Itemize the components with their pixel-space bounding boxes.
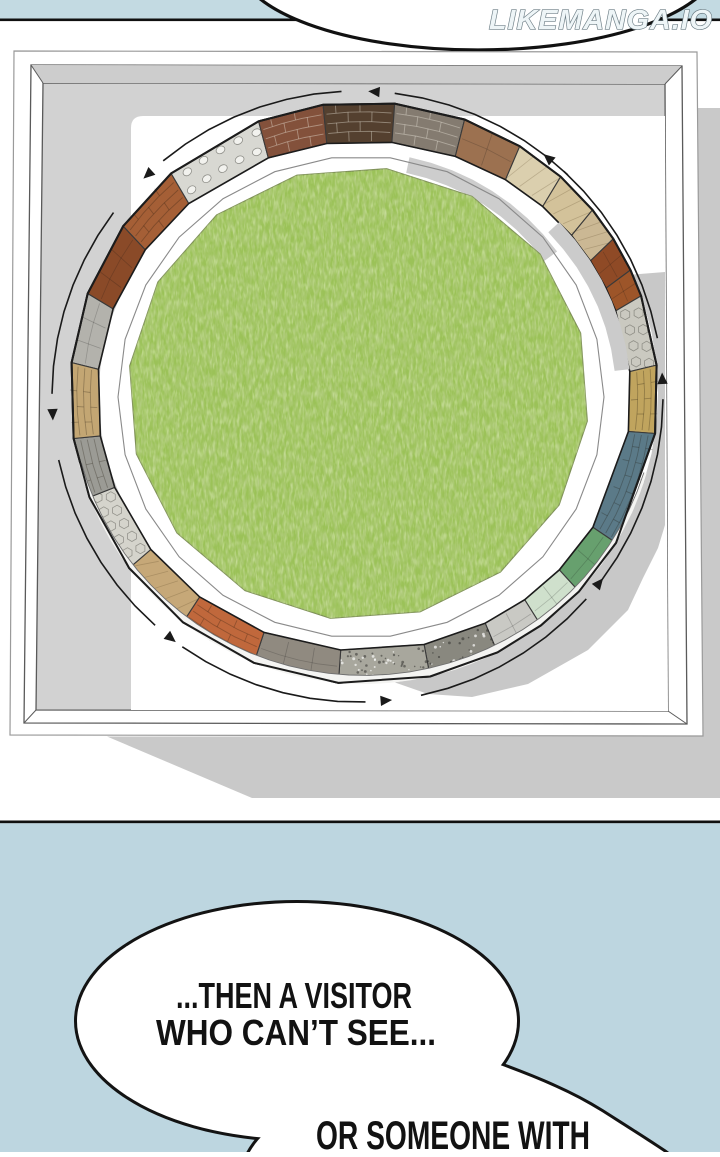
svg-text:OR SOMEONE WITH: OR SOMEONE WITH [316,1114,590,1152]
svg-text:WHO CAN’T SEE...: WHO CAN’T SEE... [156,1012,436,1053]
svg-text:LIKEMANGA.IO: LIKEMANGA.IO [489,4,713,35]
svg-text:...THEN A VISITOR: ...THEN A VISITOR [176,975,412,1016]
